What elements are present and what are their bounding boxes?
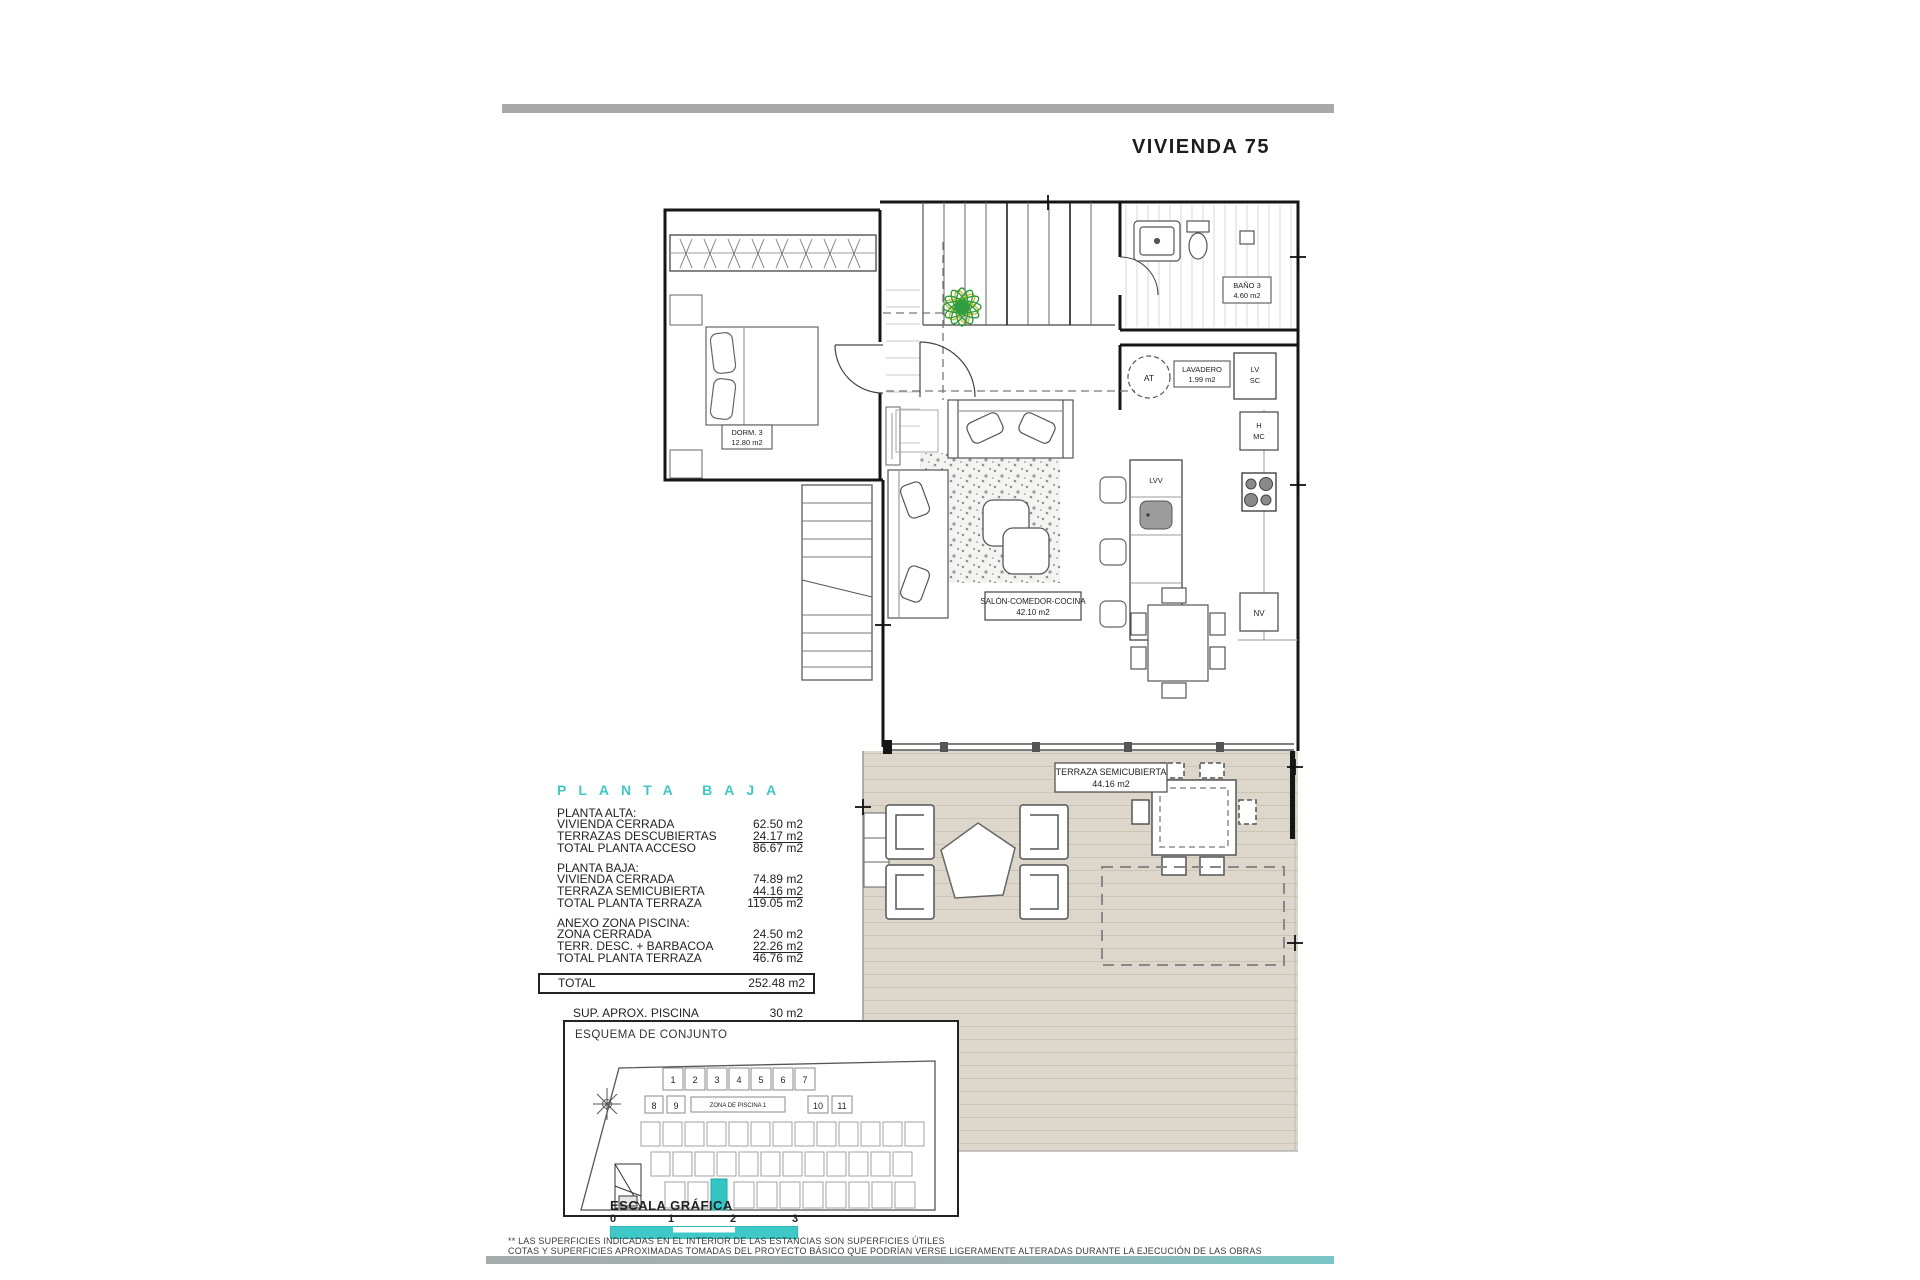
summary-row: TOTAL PLANTA TERRAZA119.05 m2	[557, 898, 803, 910]
svg-text:LV: LV	[1251, 365, 1260, 374]
site-scheme-box: ESQUEMA DE CONJUNTO 1 2 3 4 5 6 7	[563, 1020, 959, 1217]
tv-bench	[886, 407, 900, 465]
dorm3-label: DORM. 3 12.80 m2	[722, 425, 772, 449]
svg-text:9: 9	[673, 1101, 678, 1111]
exterior-stair	[802, 485, 872, 680]
top-divider-bar	[502, 104, 1334, 113]
toilet	[1187, 221, 1209, 259]
summary-heading: PLANTA BAJA	[557, 785, 803, 797]
svg-text:AT: AT	[1144, 373, 1154, 383]
svg-text:SC: SC	[1250, 376, 1261, 385]
svg-text:12.80 m2: 12.80 m2	[731, 438, 762, 447]
page-canvas: { "page": { "title": "VIVIENDA 75" }, "p…	[0, 0, 1920, 1280]
summary-row: TOTAL PLANTA TERRAZA46.76 m2	[557, 953, 803, 965]
terrace-label: TERRAZA SEMICUBIERTA 44.16 m2	[1055, 763, 1167, 792]
nightstand	[670, 450, 702, 478]
living-group: SALÓN-COMEDOR-COCINA 42.10 m2	[886, 400, 1086, 620]
svg-text:5: 5	[758, 1075, 763, 1085]
scale-tick: 1	[668, 1213, 674, 1225]
sink	[1140, 501, 1172, 529]
svg-text:LAVADERO: LAVADERO	[1182, 365, 1222, 374]
summary-section-planta-baja: PLANTA BAJA: VIVIENDA CERRADA74.89 m2 TE…	[557, 863, 803, 910]
bano3-label: BAÑO 3 4.60 m2	[1223, 277, 1271, 303]
cooktop	[1242, 473, 1276, 511]
svg-text:H: H	[1256, 421, 1261, 430]
washer-dryer: LV SC	[1234, 353, 1276, 399]
plant-icon	[943, 288, 982, 327]
summary-row: TOTAL PLANTA ACCESO86.67 m2	[557, 843, 803, 855]
area-summary-panel: PLANTA BAJA PLANTA ALTA: VIVIENDA CERRAD…	[557, 785, 803, 1036]
scale-tick: 2	[730, 1213, 736, 1225]
scale-title: ESCALA GRÁFICA	[610, 1198, 810, 1213]
graphic-scale: ESCALA GRÁFICA 0 1 2 3	[610, 1198, 810, 1239]
plot-row-b	[651, 1152, 912, 1176]
hall-door	[920, 342, 975, 397]
page-title: VIVIENDA 75	[1040, 136, 1270, 159]
svg-text:8: 8	[651, 1101, 656, 1111]
svg-text:4: 4	[736, 1075, 741, 1085]
svg-text:6: 6	[780, 1075, 785, 1085]
salon-label: SALÓN-COMEDOR-COCINA 42.10 m2	[980, 592, 1086, 620]
svg-text:1: 1	[670, 1075, 675, 1085]
svg-text:7: 7	[802, 1075, 807, 1085]
nightstand	[670, 295, 702, 325]
site-scheme-title: ESQUEMA DE CONJUNTO	[575, 1029, 727, 1041]
lavadero-label: LAVADERO 1.99 m2	[1174, 361, 1230, 387]
summary-row: SUP. APROX. PISCINA30 m2	[557, 1006, 803, 1021]
scale-ticks: 0 1 2 3	[610, 1213, 810, 1226]
sofa-top	[948, 400, 1073, 458]
svg-text:3: 3	[714, 1075, 719, 1085]
scale-tick: 0	[610, 1213, 616, 1225]
svg-text:MC: MC	[1253, 432, 1265, 441]
laundry-group: AT LAVADERO 1.99 m2 LV SC	[1128, 353, 1276, 399]
bed	[706, 327, 818, 425]
shower	[1134, 221, 1180, 261]
svg-text:1.99 m2: 1.99 m2	[1188, 375, 1215, 384]
svg-text:BAÑO 3: BAÑO 3	[1233, 281, 1261, 290]
overhang-dashes	[883, 242, 1135, 400]
site-scheme-map: 1 2 3 4 5 6 7 8 9 10 11 ZONA DE PISCINA …	[565, 1046, 957, 1214]
svg-text:LVV: LVV	[1149, 476, 1163, 485]
disclaimer-line-2: COTAS Y SUPERFICIES APROXIMADAS TOMADAS …	[508, 1247, 1368, 1257]
sofa-left	[888, 470, 948, 618]
svg-text:11: 11	[837, 1101, 846, 1111]
bedroom-group: DORM. 3 12.80 m2	[665, 210, 883, 480]
svg-text:NV: NV	[1253, 609, 1265, 618]
summary-section-anexo-piscina: ANEXO ZONA PISCINA: ZONA CERRADA24.50 m2…	[557, 918, 803, 965]
svg-text:TERRAZA SEMICUBIERTA: TERRAZA SEMICUBIERTA	[1056, 767, 1167, 777]
bar-stools	[1100, 477, 1126, 627]
svg-text:SALÓN-COMEDOR-COCINA: SALÓN-COMEDOR-COCINA	[980, 597, 1086, 606]
bottom-divider-bar	[486, 1256, 1334, 1264]
bedroom-door	[835, 345, 883, 393]
svg-text:44.16 m2: 44.16 m2	[1092, 779, 1130, 789]
oven-microwave: H MC	[1240, 412, 1278, 450]
plot-row-a	[641, 1122, 924, 1146]
disclaimer-footer: ** LAS SUPERFICIES INDICADAS EN EL INTER…	[508, 1237, 1368, 1256]
compass-icon	[593, 1088, 621, 1120]
total-value: 252.48 m2	[748, 978, 805, 990]
svg-text:2: 2	[692, 1075, 697, 1085]
wardrobe	[670, 235, 876, 271]
zona-piscina-label: ZONA DE PISCINA 1	[710, 1103, 767, 1109]
summary-section-planta-alta: PLANTA ALTA: VIVIENDA CERRADA62.50 m2 TE…	[557, 808, 803, 855]
svg-text:42.10 m2: 42.10 m2	[1016, 608, 1050, 617]
bathroom-group: BAÑO 3 4.60 m2	[1120, 205, 1291, 327]
kitchen-group: H MC NV LVV	[1100, 410, 1298, 698]
svg-text:10: 10	[813, 1101, 823, 1111]
scale-tick: 3	[792, 1213, 798, 1225]
total-label: TOTAL	[558, 978, 596, 990]
bath-sink	[1240, 231, 1254, 244]
total-box: TOTAL 252.48 m2	[538, 973, 815, 995]
side-table	[896, 410, 938, 452]
svg-text:DORM. 3: DORM. 3	[731, 428, 762, 437]
svg-text:4.60 m2: 4.60 m2	[1233, 291, 1260, 300]
fridge: NV	[1240, 593, 1278, 631]
